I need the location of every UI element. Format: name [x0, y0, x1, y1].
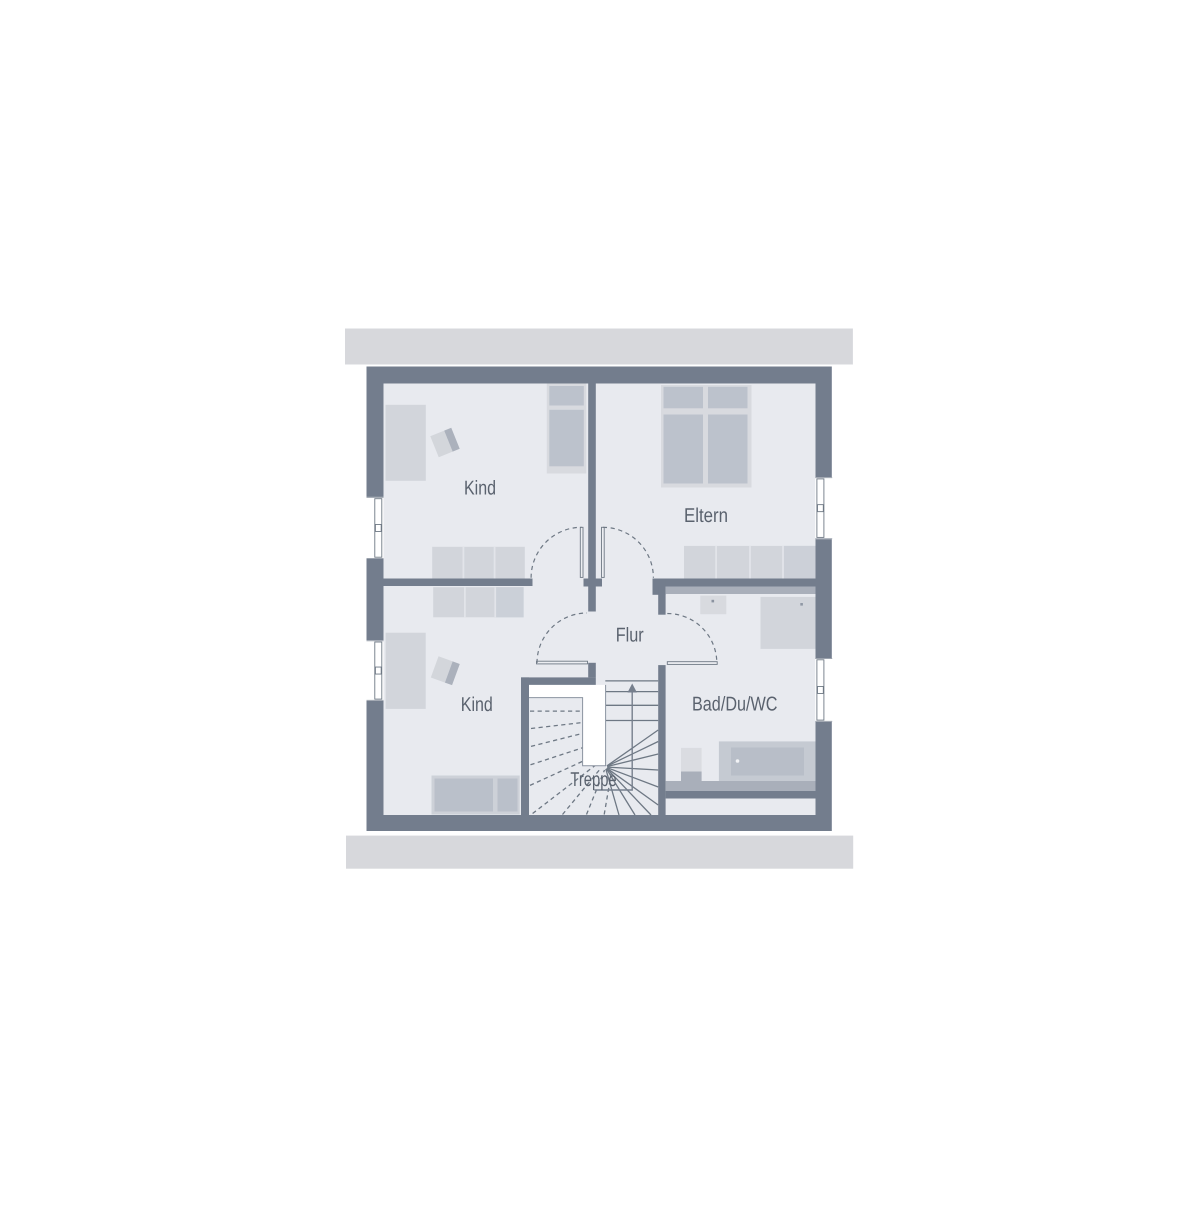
svg-text:Treppe: Treppe — [570, 769, 616, 791]
svg-text:Kind: Kind — [461, 694, 493, 716]
svg-text:Flur: Flur — [616, 625, 644, 647]
svg-text:Kind: Kind — [464, 477, 496, 499]
svg-text:Eltern: Eltern — [684, 505, 728, 527]
svg-text:Bad/Du/WC: Bad/Du/WC — [692, 694, 778, 716]
